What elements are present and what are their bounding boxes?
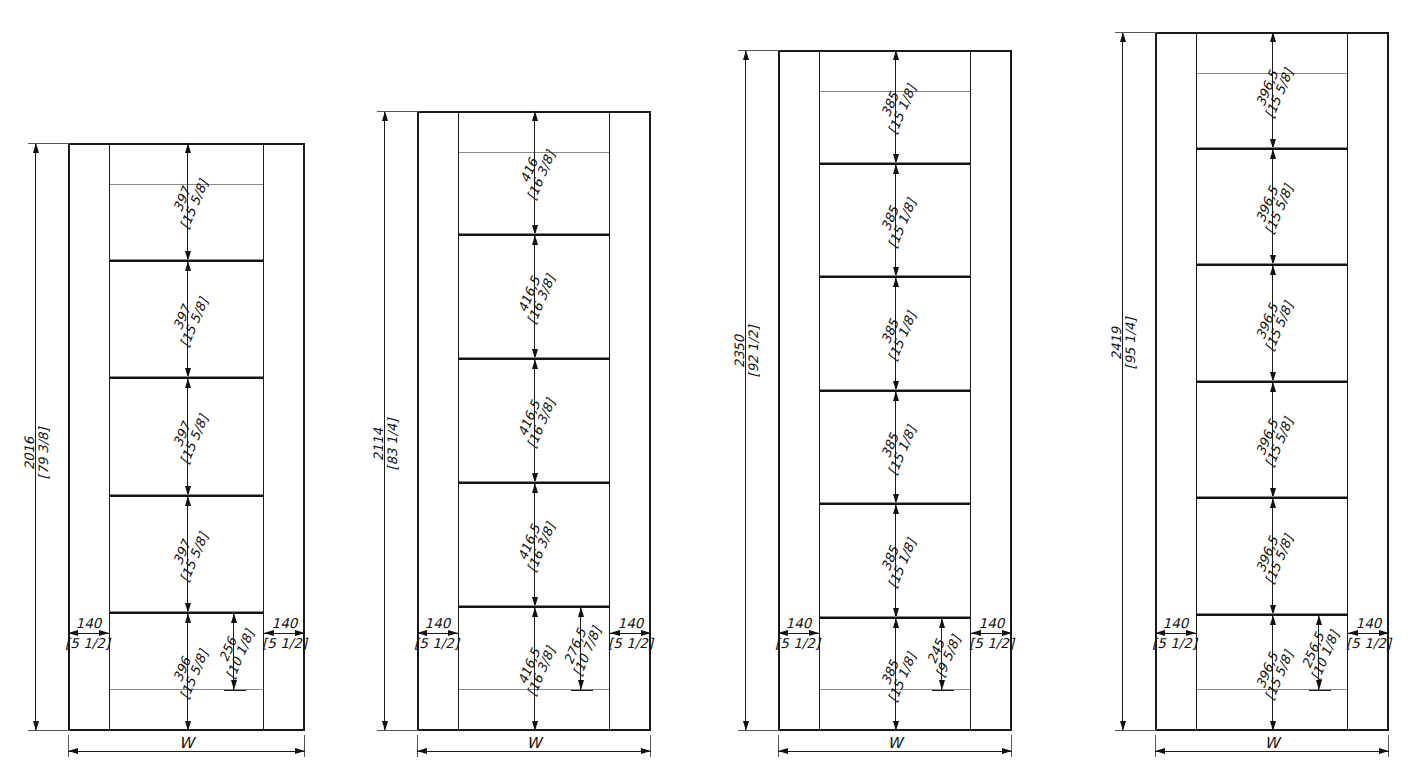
stile-dim-in-right: [5 1/2] bbox=[1346, 635, 1412, 651]
shelf-spacing-label: 397[15 5/8] bbox=[153, 260, 224, 381]
stile-dim-mm-left: 140 bbox=[411, 615, 464, 631]
total-height-arrow-up bbox=[743, 50, 749, 60]
extension-line-bottom bbox=[377, 730, 419, 731]
dim-arrow-up bbox=[893, 504, 899, 514]
stile-dim-in-left: [5 1/2] bbox=[775, 635, 855, 651]
total-height-label: 2114[83 1/4] bbox=[372, 385, 399, 505]
extension-line-top bbox=[1115, 32, 1157, 33]
dim-arrow-up bbox=[893, 164, 899, 174]
dim-arrow-down bbox=[532, 721, 538, 731]
extension-line-bottom bbox=[738, 730, 780, 731]
cabinet-4: 396,5[15 5/8]396,5[15 5/8]396,5[15 5/8]3… bbox=[1155, 32, 1389, 731]
width-label: W bbox=[778, 734, 1012, 752]
stile-dim-mm-left: 140 bbox=[62, 615, 115, 631]
dim-arrow-up bbox=[185, 496, 191, 506]
total-height-label-mm: 2016 bbox=[23, 394, 37, 514]
width-label: W bbox=[1155, 734, 1389, 752]
total-height-label: 2419[95 1/4] bbox=[1110, 284, 1137, 404]
extension-line-top bbox=[738, 50, 780, 51]
extension-line-bottom bbox=[1115, 730, 1157, 731]
total-height-arrow-up bbox=[1120, 32, 1126, 42]
dim-arrow-up bbox=[1270, 265, 1276, 275]
dim-arrow-down bbox=[1270, 721, 1276, 731]
shelf-spacing-label: 416,5[16 3/8] bbox=[500, 485, 571, 606]
shelf-spacing-label: 396,5[15 5/8] bbox=[1238, 147, 1309, 268]
shelf-spacing-label: 416,5[16 3/8] bbox=[500, 237, 571, 358]
stile-dim-in-left: [5 1/2] bbox=[65, 635, 145, 651]
total-height-label-in: [92 1/2] bbox=[746, 292, 760, 412]
width-label: W bbox=[68, 734, 305, 752]
stile-dim-in-left: [5 1/2] bbox=[414, 635, 494, 651]
dim-arrow-down bbox=[893, 721, 899, 731]
shelf-spacing-label: 385[15 1/8] bbox=[861, 161, 932, 282]
total-height-label: 2350[92 1/2] bbox=[733, 292, 760, 412]
cabinet-3: 385[15 1/8]385[15 1/8]385[15 1/8]385[15 … bbox=[778, 50, 1012, 731]
shelf-spacing-label: 385[15 1/8] bbox=[861, 501, 932, 622]
shelf-spacing-label: 396,5[15 5/8] bbox=[1238, 497, 1309, 618]
shelf-spacing-label: 397[15 5/8] bbox=[153, 142, 224, 263]
stile-dim-in-right: [5 1/2] bbox=[969, 635, 1049, 651]
dim-arrow-up bbox=[1270, 615, 1276, 625]
total-height-label-mm: 2419 bbox=[1110, 284, 1124, 404]
dim-arrow-up bbox=[185, 613, 191, 623]
shelf-spacing-label: 385[15 1/8] bbox=[861, 47, 932, 168]
total-height-label-in: [95 1/4] bbox=[1123, 284, 1137, 404]
stile-dim-mm-right: 140 bbox=[604, 615, 657, 631]
technical-drawing: 397[15 5/8]397[15 5/8]397[15 5/8]397[15 … bbox=[0, 0, 1412, 775]
stile-dim-mm-left: 140 bbox=[1149, 615, 1202, 631]
total-height-label-mm: 2114 bbox=[372, 385, 386, 505]
dim-arrow-up bbox=[185, 378, 191, 388]
stile-dim-in-right: [5 1/2] bbox=[608, 635, 688, 651]
shelf-spacing-label: 385[15 1/8] bbox=[861, 274, 932, 395]
shelf-spacing-label: 396,5[15 5/8] bbox=[1238, 31, 1309, 152]
shelf-spacing-label: 397[15 5/8] bbox=[153, 377, 224, 498]
dim-arrow-down bbox=[185, 721, 191, 731]
total-height-label-in: [79 3/8] bbox=[36, 394, 50, 514]
dim-arrow-up bbox=[1270, 32, 1276, 42]
dim-arrow-up bbox=[185, 143, 191, 153]
width-label: W bbox=[417, 734, 651, 752]
total-height-label-in: [83 1/4] bbox=[385, 385, 399, 505]
extension-line-bottom bbox=[28, 730, 70, 731]
stile-dim-mm-right: 140 bbox=[1342, 615, 1395, 631]
dim-arrow-up bbox=[532, 111, 538, 121]
shelf-spacing-label: 396,5[15 5/8] bbox=[1238, 380, 1309, 501]
shelf-spacing-label: 416[16 3/8] bbox=[500, 113, 571, 234]
total-height-arrow-up bbox=[33, 143, 39, 153]
stile-dim-mm-right: 140 bbox=[258, 615, 311, 631]
cabinet-2: 416[16 3/8]416,5[16 3/8]416,5[16 3/8]416… bbox=[417, 111, 651, 731]
shelf-spacing-label: 396,5[15 5/8] bbox=[1238, 264, 1309, 385]
cabinet-1: 397[15 5/8]397[15 5/8]397[15 5/8]397[15 … bbox=[68, 143, 305, 731]
stile-dim-in-left: [5 1/2] bbox=[1152, 635, 1232, 651]
shelf-spacing-label: 385[15 1/8] bbox=[861, 388, 932, 509]
total-height-label-mm: 2350 bbox=[733, 292, 747, 412]
total-height-label: 2016[79 3/8] bbox=[23, 394, 50, 514]
total-height-arrow-up bbox=[382, 111, 388, 121]
dim-arrow-up bbox=[1270, 498, 1276, 508]
dim-arrow-up bbox=[532, 607, 538, 617]
dim-arrow-up bbox=[893, 277, 899, 287]
dim-arrow-up bbox=[532, 359, 538, 369]
stile-dim-mm-right: 140 bbox=[965, 615, 1018, 631]
dim-arrow-up bbox=[893, 391, 899, 401]
stile-dim-in-right: [5 1/2] bbox=[262, 635, 342, 651]
extension-line-top bbox=[377, 111, 419, 112]
shelf-spacing-label: 416,5[16 3/8] bbox=[500, 361, 571, 482]
dim-arrow-up bbox=[1270, 149, 1276, 159]
dim-arrow-up bbox=[185, 261, 191, 271]
extension-line-top bbox=[28, 143, 70, 144]
dim-arrow-up bbox=[893, 618, 899, 628]
shelf-spacing-label: 397[15 5/8] bbox=[153, 495, 224, 616]
dim-arrow-up bbox=[893, 50, 899, 60]
dim-arrow-up bbox=[532, 483, 538, 493]
dim-arrow-up bbox=[1270, 382, 1276, 392]
dim-arrow-up bbox=[532, 235, 538, 245]
stile-dim-mm-left: 140 bbox=[772, 615, 825, 631]
